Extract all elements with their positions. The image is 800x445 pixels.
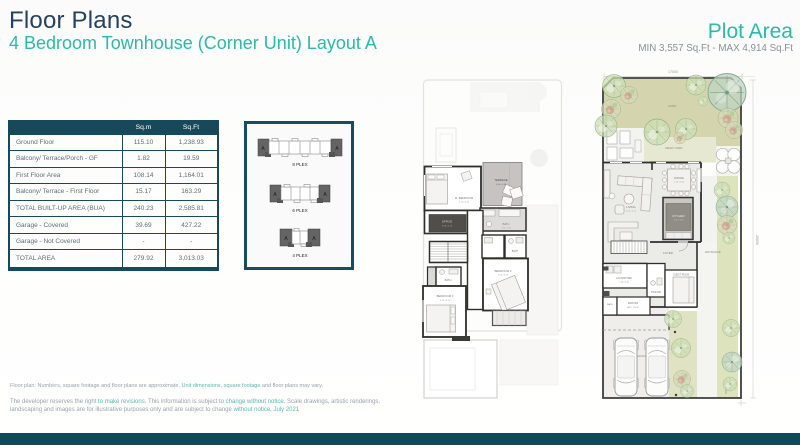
svg-text:3.00 x 3.60: 3.00 x 3.60	[674, 220, 685, 222]
svg-text:BEDROOM 2: BEDROOM 2	[495, 269, 512, 273]
svg-text:ENTRANCE: ENTRANCE	[705, 250, 721, 254]
svg-text:PWD RM: PWD RM	[651, 291, 661, 294]
svg-text:BATH: BATH	[607, 303, 613, 306]
svg-text:3.10 x 3.60: 3.10 x 3.60	[674, 182, 685, 184]
svg-text:REAR YARD: REAR YARD	[665, 146, 683, 150]
svg-text:OFFICE: OFFICE	[442, 220, 452, 224]
svg-text:2.90 x 2.20: 2.90 x 2.20	[501, 227, 510, 229]
svg-text:3.50 x 3.20: 3.50 x 3.20	[440, 300, 451, 302]
svg-text:3.65 x 2.35: 3.65 x 2.35	[442, 225, 453, 227]
svg-text:M. BEDROOM: M. BEDROOM	[455, 196, 474, 200]
svg-text:BATH: BATH	[503, 222, 510, 226]
svg-text:BATH: BATH	[512, 250, 519, 253]
svg-text:6 PLEX: 6 PLEX	[292, 208, 307, 213]
svg-text:8 PLEX: 8 PLEX	[292, 162, 307, 167]
svg-text:MAID. TOILET: MAID. TOILET	[627, 306, 640, 309]
svg-text:TERRACE: TERRACE	[494, 178, 507, 182]
svg-text:BATH: BATH	[445, 278, 452, 282]
svg-text:BEDROOM 3: BEDROOM 3	[437, 294, 454, 298]
svg-text:29000: 29000	[755, 235, 759, 245]
svg-text:4.20 x 5.10: 4.20 x 5.10	[626, 211, 637, 213]
svg-text:3.70 x 4.60: 3.70 x 4.60	[459, 202, 470, 204]
svg-text:4 PLEX: 4 PLEX	[292, 253, 307, 258]
svg-text:4.60 x 3.40: 4.60 x 3.40	[496, 184, 507, 186]
svg-text:GUEST ROOM: GUEST ROOM	[673, 274, 689, 277]
svg-text:KITCHEN: KITCHEN	[672, 214, 684, 218]
svg-text:LAUN/STORE: LAUN/STORE	[616, 277, 632, 280]
svg-text:17000: 17000	[668, 70, 678, 74]
svg-text:DINING: DINING	[674, 176, 684, 180]
svg-text:LIVING: LIVING	[626, 205, 635, 209]
svg-text:MAID RM: MAID RM	[628, 302, 638, 305]
svg-text:3.20 x 4.20: 3.20 x 4.20	[498, 275, 509, 277]
svg-text:LAWN: LAWN	[668, 104, 677, 108]
svg-text:1.80 x 3.40: 1.80 x 3.40	[619, 281, 628, 283]
svg-text:FOYER: FOYER	[663, 251, 673, 255]
